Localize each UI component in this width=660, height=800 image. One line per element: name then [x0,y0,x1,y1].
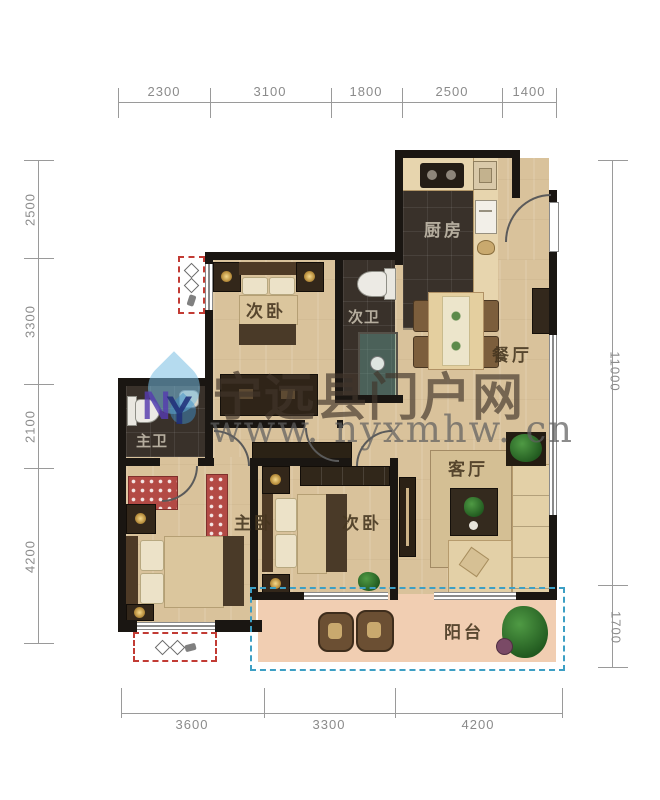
dim-tick [210,88,211,118]
dim-line [121,713,562,714]
dim-value: 3100 [245,84,295,99]
bed-body [297,494,327,574]
bed-foot [223,536,244,606]
watermark-logo-letter-y: Y [166,389,193,434]
wall [205,252,213,264]
dim-tick [402,88,403,118]
window [205,264,213,310]
kitchen-basket-icon [477,240,495,255]
dim-value: 4200 [453,717,503,732]
floor-plan-canvas: 2300 3100 1800 2500 1400 2500 3300 2100 … [0,0,660,800]
dim-tick [24,468,54,469]
bed-headboard [126,536,138,606]
dim-value: 1400 [504,84,554,99]
dim-tick [502,88,503,118]
fridge-handle [479,210,492,212]
bay-window-icon [169,639,185,655]
dim-tick [118,88,119,118]
lamp-icon [304,271,315,282]
dim-tick [24,643,54,644]
lamp-icon [134,607,145,618]
dim-tick [598,585,628,586]
wardrobe [300,466,390,486]
wall [549,250,557,335]
wall [512,150,520,198]
wall [118,620,137,632]
fridge-icon [475,200,497,234]
wall [390,466,398,600]
dim-value: 4200 [23,529,38,585]
coffee-table [450,488,498,536]
bay-window-icon [184,262,200,278]
dim-value: 2300 [139,84,189,99]
dim-line [38,160,39,643]
pillow [275,534,297,568]
lamp-icon [221,271,232,282]
bed-foot [239,324,296,345]
room-label-bath-secondary: 次卫 [348,306,380,327]
wall [395,150,520,158]
burner-icon [427,170,437,180]
nightstand [213,262,241,292]
nightstand [126,604,154,621]
dim-tick [598,667,628,668]
bay-window-icon [184,277,200,293]
pillow [140,540,164,571]
bay-window-mark-icon [184,642,196,652]
dim-value: 2500 [23,182,38,238]
pillow [275,498,297,532]
dim-value: 1800 [341,84,391,99]
sofa-chaise [448,540,512,594]
dim-tick [556,88,557,118]
sink-icon [473,161,497,190]
wall [205,252,403,260]
dim-tick [24,160,54,161]
dim-value: 1700 [609,600,624,656]
wall [126,458,160,466]
sink-basin [479,168,492,183]
lamp-icon [135,513,146,524]
tv-icon [406,488,409,546]
burner-icon [446,170,456,180]
dim-tick [121,688,122,718]
dim-value: 2100 [23,399,38,455]
red-wardrobe [206,474,228,542]
wall [118,386,126,632]
window [137,622,215,630]
pillow [242,277,268,295]
dim-tick [24,258,54,259]
bay-window-mark-icon [186,294,196,307]
dim-value: 11000 [608,342,623,402]
bed-body [164,536,224,608]
dim-tick [264,688,265,718]
sofa-pillow [459,547,490,578]
dim-line [118,102,557,103]
nightstand [296,262,324,292]
bay-window-icon [154,639,170,655]
dim-tick [562,688,563,718]
bay-window [133,632,217,662]
room-label-bedroom-second: 次卧 [342,509,382,534]
dim-value: 2500 [427,84,477,99]
stove-icon [420,163,464,188]
room-label-bedroom-top: 次卧 [246,297,286,322]
dim-value: 3600 [167,717,217,732]
dim-tick [598,160,628,161]
room-label-bedroom-master: 主卧 [234,509,274,534]
watermark-site-url: www. nyxmhw. cn [210,408,574,451]
lamp-icon [270,474,281,485]
room-label-balcony: 阳台 [444,618,484,643]
wall [198,458,214,466]
dish-icon [469,521,478,530]
room-label-bath-master: 主卫 [136,430,168,451]
bed-headboard [239,262,296,275]
dim-tick [331,88,332,118]
bay-window [178,256,205,314]
nightstand [262,466,290,494]
tv-stand [399,477,416,557]
wall [395,158,403,265]
pillow [140,573,164,604]
dim-tick [395,688,396,718]
nightstand [126,504,156,534]
sofa-main [512,464,551,594]
pillow [269,277,295,295]
dim-value: 3300 [23,294,38,350]
dim-value: 3300 [304,717,354,732]
dim-tick [24,384,54,385]
dim-line [612,160,613,668]
toilet-bowl-icon [357,271,387,297]
room-label-living: 客厅 [448,455,488,480]
room-label-kitchen: 厨房 [424,216,464,241]
balcony-outline [250,587,565,671]
plant-icon [464,497,484,517]
